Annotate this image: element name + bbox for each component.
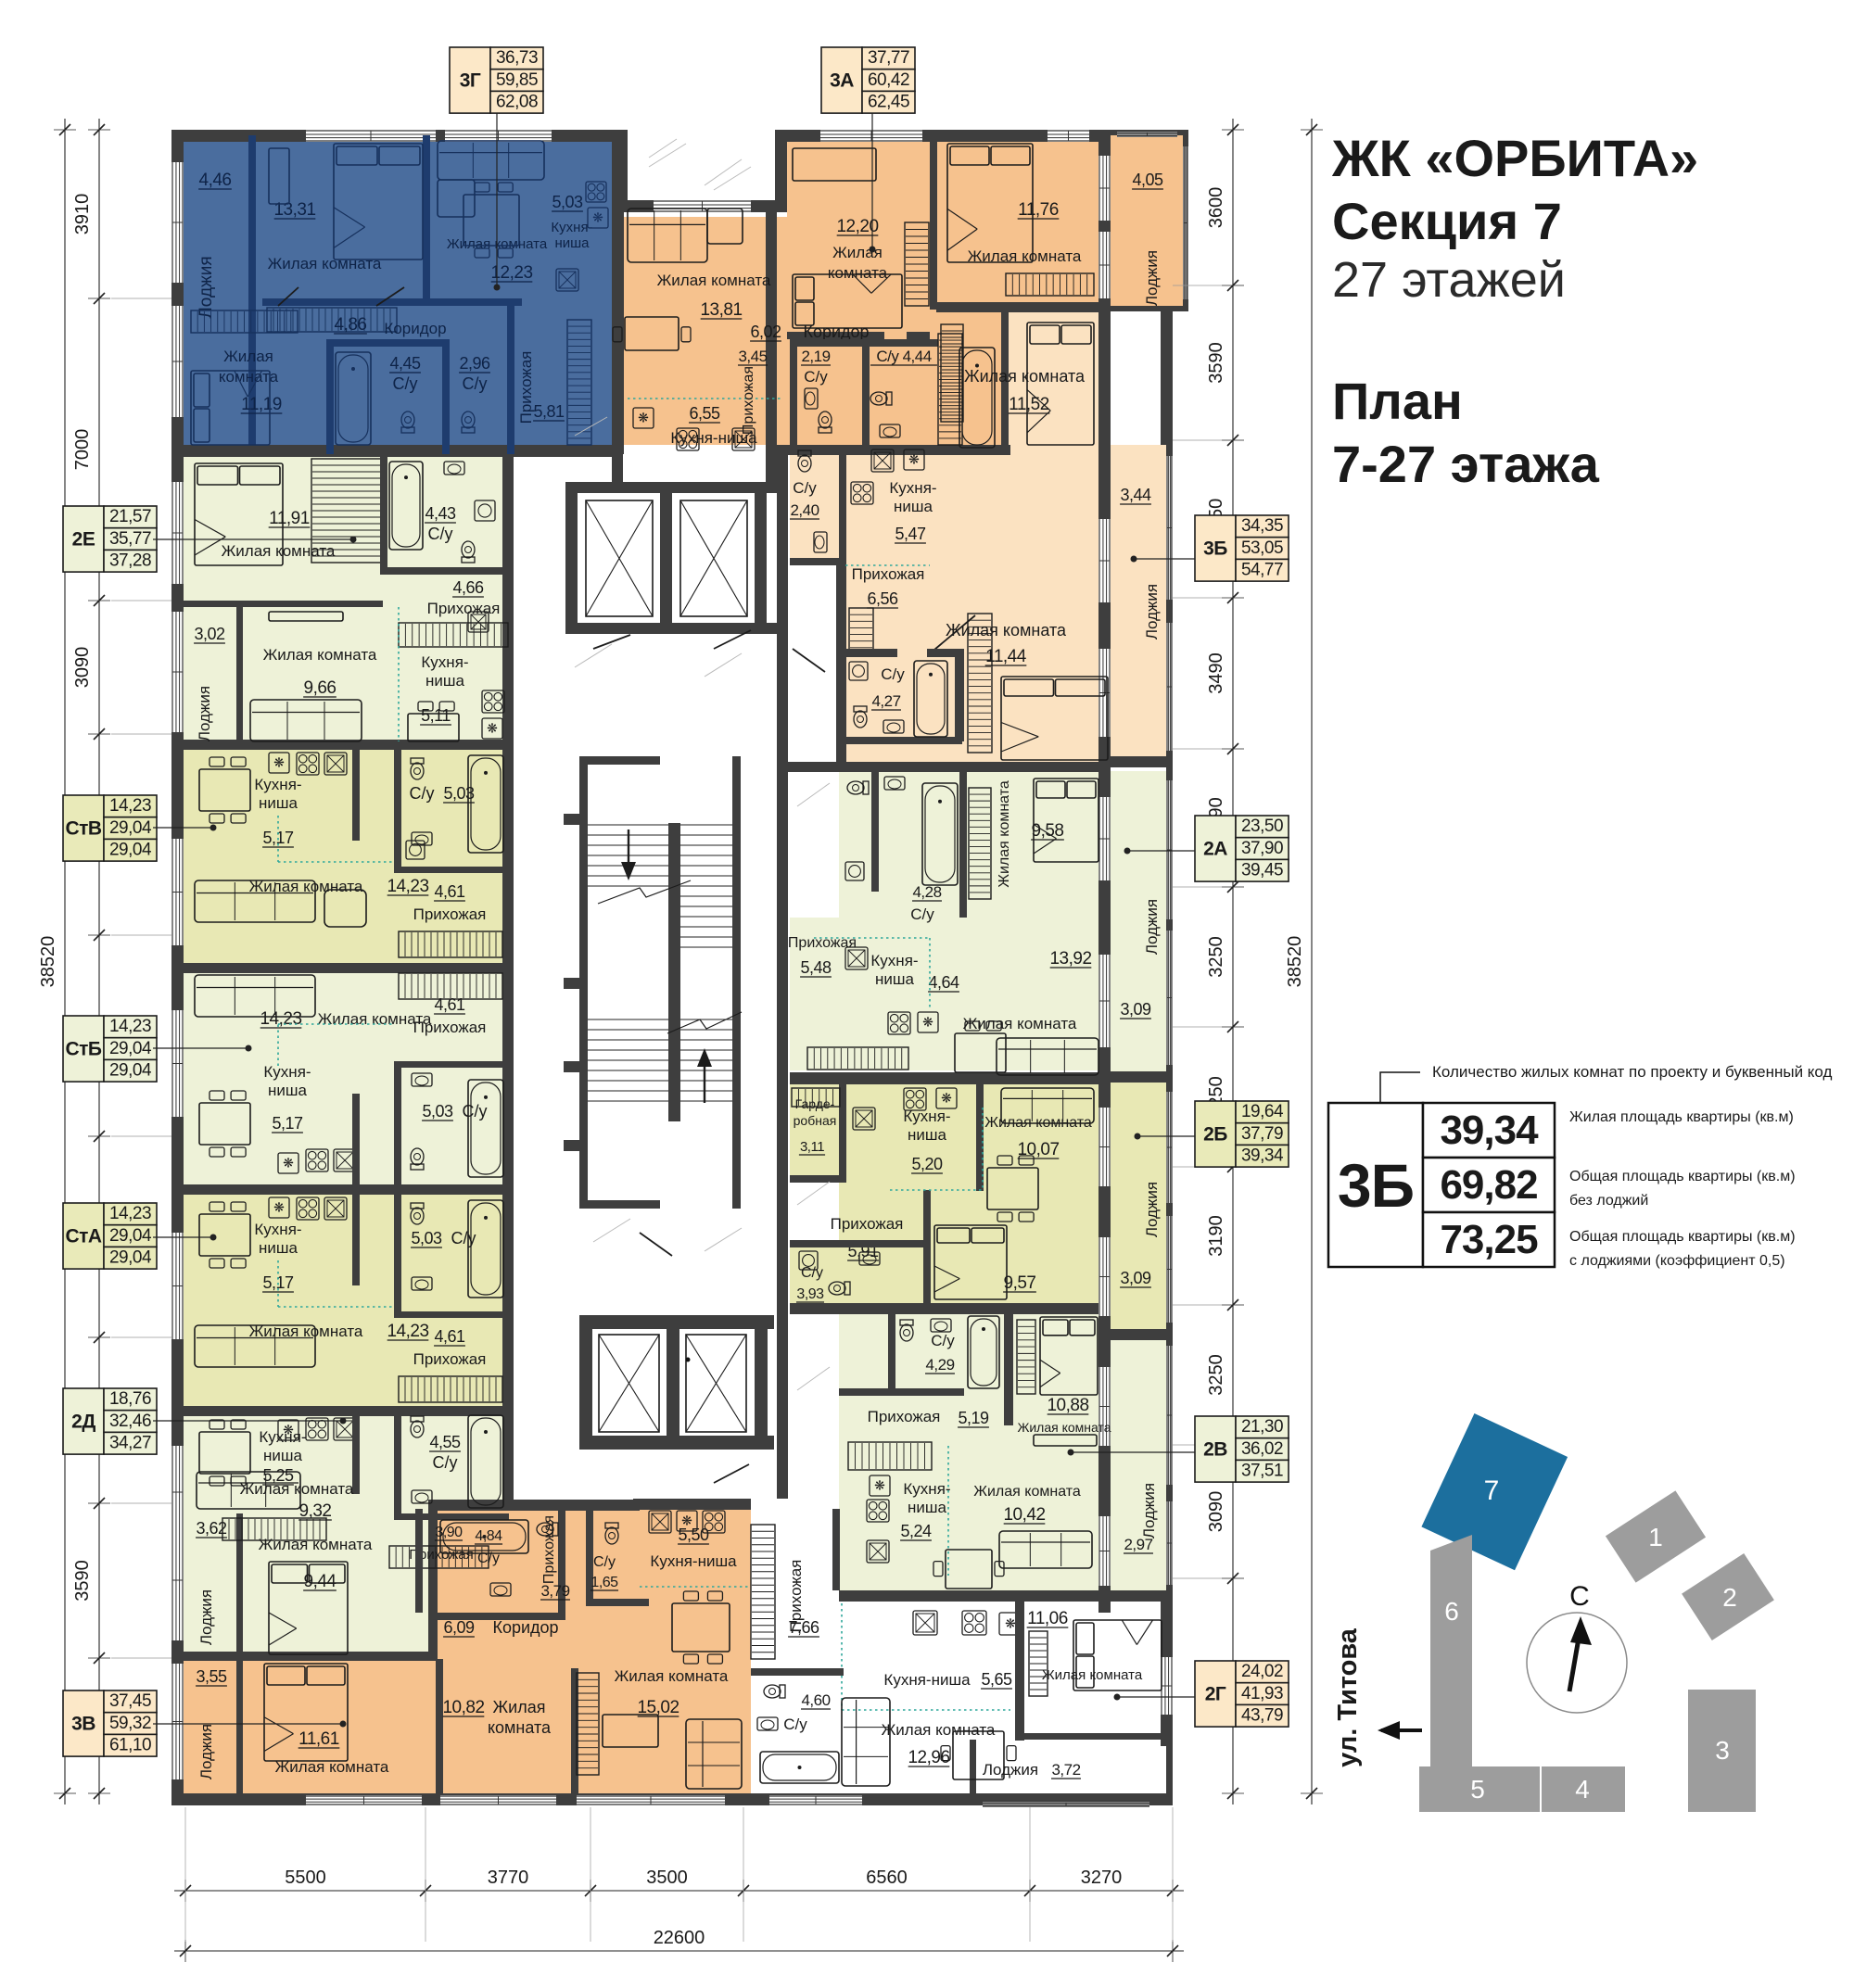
svg-text:13,81: 13,81 xyxy=(700,300,742,320)
svg-text:2В: 2В xyxy=(1203,1439,1227,1461)
svg-text:21,57: 21,57 xyxy=(109,507,151,526)
svg-text:С: С xyxy=(1569,1581,1590,1612)
svg-text:ниша: ниша xyxy=(908,1126,947,1144)
svg-text:Лоджия: Лоджия xyxy=(1143,1182,1161,1237)
svg-text:Лоджия: Лоджия xyxy=(196,686,213,741)
svg-text:29,04: 29,04 xyxy=(109,1226,152,1246)
svg-text:13,31: 13,31 xyxy=(273,200,315,220)
svg-text:ниша: ниша xyxy=(425,672,465,690)
svg-text:4,28: 4,28 xyxy=(912,883,941,901)
svg-text:5,20: 5,20 xyxy=(911,1155,943,1173)
svg-text:4: 4 xyxy=(1575,1775,1590,1804)
svg-text:4,61: 4,61 xyxy=(434,882,465,901)
svg-text:3910: 3910 xyxy=(72,194,93,235)
svg-text:Жилая комната: Жилая комната xyxy=(973,1484,1081,1500)
svg-text:ниша: ниша xyxy=(875,970,915,988)
svg-text:Количество жилых комнат по про: Количество жилых комнат по проекту и бук… xyxy=(1432,1063,1833,1081)
svg-text:ниша: ниша xyxy=(259,1239,298,1257)
svg-text:С/у: С/у xyxy=(393,374,418,393)
svg-text:❋: ❋ xyxy=(283,1156,294,1171)
svg-text:Жилая: Жилая xyxy=(223,348,273,365)
svg-text:37,90: 37,90 xyxy=(1241,839,1283,858)
svg-text:Жилая комната: Жилая комната xyxy=(259,1536,373,1553)
svg-text:11,06: 11,06 xyxy=(1027,1609,1068,1628)
svg-text:38520: 38520 xyxy=(1285,936,1305,988)
svg-text:3190: 3190 xyxy=(1206,1215,1226,1257)
svg-text:2Г: 2Г xyxy=(1205,1684,1226,1705)
svg-text:7-27 этажа: 7-27 этажа xyxy=(1332,435,1600,493)
svg-text:14,23: 14,23 xyxy=(109,1017,151,1036)
svg-text:11,91: 11,91 xyxy=(269,509,310,528)
svg-text:Прихожая: Прихожая xyxy=(413,905,487,923)
svg-text:❋: ❋ xyxy=(638,411,649,425)
svg-text:С/у: С/у xyxy=(804,368,828,386)
svg-text:43,79: 43,79 xyxy=(1241,1706,1283,1726)
svg-text:С/у: С/у xyxy=(783,1716,807,1733)
svg-text:С/у: С/у xyxy=(463,374,488,393)
svg-text:Жилая комната: Жилая комната xyxy=(615,1667,729,1685)
svg-text:27 этажей: 27 этажей xyxy=(1332,252,1566,308)
svg-text:36,73: 36,73 xyxy=(496,48,538,68)
svg-text:1: 1 xyxy=(1648,1523,1663,1551)
svg-text:ул. Титова: ул. Титова xyxy=(1333,1627,1363,1767)
svg-text:ниша: ниша xyxy=(908,1499,947,1516)
svg-text:Кухня-: Кухня- xyxy=(254,776,301,793)
svg-text:37,51: 37,51 xyxy=(1241,1462,1283,1481)
svg-text:С/у: С/у xyxy=(801,1265,823,1281)
svg-text:3,93: 3,93 xyxy=(796,1286,824,1302)
svg-text:5,03: 5,03 xyxy=(552,193,583,211)
svg-text:7,66: 7,66 xyxy=(788,1618,819,1637)
svg-text:СтА: СтА xyxy=(65,1226,101,1247)
svg-text:23,50: 23,50 xyxy=(1241,817,1283,836)
svg-text:С/у: С/у xyxy=(881,665,905,683)
svg-text:Жилая комната: Жилая комната xyxy=(946,621,1067,639)
svg-text:Кухня-: Кухня- xyxy=(903,1480,950,1498)
svg-text:4,60: 4,60 xyxy=(801,1691,830,1709)
svg-text:3,45: 3,45 xyxy=(738,348,767,365)
svg-text:6,09: 6,09 xyxy=(443,1618,475,1637)
svg-text:14,23: 14,23 xyxy=(109,796,151,816)
svg-text:ниша: ниша xyxy=(554,235,590,251)
svg-text:5,03: 5,03 xyxy=(443,784,475,803)
svg-text:2,40: 2,40 xyxy=(790,501,819,519)
svg-text:3Б: 3Б xyxy=(1203,538,1227,560)
svg-text:Жилая комната: Жилая комната xyxy=(268,255,382,272)
svg-text:4,61: 4,61 xyxy=(434,1327,465,1346)
svg-text:3А: 3А xyxy=(830,70,854,92)
svg-text:3250: 3250 xyxy=(1206,1354,1226,1396)
svg-text:Жилая комната: Жилая комната xyxy=(263,646,377,664)
svg-text:С/у: С/у xyxy=(433,1453,458,1472)
svg-text:37,77: 37,77 xyxy=(868,48,909,68)
svg-text:Жилая комната: Жилая комната xyxy=(657,272,771,289)
svg-text:4,55: 4,55 xyxy=(429,1433,461,1451)
svg-text:С/у: С/у xyxy=(593,1554,616,1570)
svg-text:❋: ❋ xyxy=(592,210,603,225)
svg-text:Прихожая: Прихожая xyxy=(741,366,756,435)
svg-text:Лоджия: Лоджия xyxy=(1143,899,1161,955)
svg-text:5500: 5500 xyxy=(285,1868,326,1888)
svg-text:Кухня-: Кухня- xyxy=(263,1063,311,1081)
svg-text:5,11: 5,11 xyxy=(421,706,451,725)
svg-text:1,65: 1,65 xyxy=(590,1575,618,1590)
svg-text:Прихожая: Прихожая xyxy=(541,1515,557,1584)
svg-text:19,64: 19,64 xyxy=(1241,1102,1284,1121)
svg-text:14,23: 14,23 xyxy=(387,1322,428,1341)
svg-text:38520: 38520 xyxy=(38,936,58,988)
svg-text:4,46: 4,46 xyxy=(199,171,232,190)
svg-text:61,10: 61,10 xyxy=(109,1736,151,1755)
svg-text:❋: ❋ xyxy=(273,755,285,770)
svg-text:4,66: 4,66 xyxy=(452,578,484,597)
svg-text:Лоджия: Лоджия xyxy=(983,1761,1038,1779)
svg-text:Прихожая: Прихожая xyxy=(831,1215,904,1233)
svg-text:Жилая комната: Жилая комната xyxy=(882,1721,996,1739)
svg-text:Жилая: Жилая xyxy=(832,244,883,261)
svg-text:2Б: 2Б xyxy=(1203,1124,1227,1146)
svg-text:29,04: 29,04 xyxy=(109,1061,152,1081)
svg-text:3250: 3250 xyxy=(1206,936,1226,978)
svg-text:18,76: 18,76 xyxy=(109,1389,151,1409)
svg-text:Прихожая: Прихожая xyxy=(868,1408,941,1425)
svg-text:9,58: 9,58 xyxy=(1032,821,1064,841)
svg-text:С/у: С/у xyxy=(931,1332,955,1349)
svg-text:11,61: 11,61 xyxy=(298,1729,339,1749)
svg-text:37,28: 37,28 xyxy=(109,551,151,571)
svg-text:Кухня-: Кухня- xyxy=(551,220,592,235)
svg-text:3590: 3590 xyxy=(72,1560,93,1602)
svg-text:С/у 4,44: С/у 4,44 xyxy=(876,348,931,365)
svg-text:12,96: 12,96 xyxy=(908,1748,949,1767)
svg-text:4,84: 4,84 xyxy=(475,1528,502,1544)
svg-text:3,09: 3,09 xyxy=(1120,1269,1151,1287)
svg-text:62,08: 62,08 xyxy=(496,93,538,112)
svg-text:Кухня-ниша: Кухня-ниша xyxy=(650,1552,737,1570)
svg-text:5,03: 5,03 xyxy=(422,1102,453,1121)
svg-text:робная: робная xyxy=(794,1113,837,1128)
svg-text:9,66: 9,66 xyxy=(304,678,337,698)
svg-text:9,57: 9,57 xyxy=(1004,1273,1036,1293)
svg-text:Прихожая: Прихожая xyxy=(788,935,857,951)
svg-text:2Е: 2Е xyxy=(72,529,95,551)
svg-text:59,32: 59,32 xyxy=(109,1714,151,1733)
svg-text:Жилая комната: Жилая комната xyxy=(1042,1667,1143,1683)
svg-text:3,79: 3,79 xyxy=(540,1582,569,1600)
svg-text:24,02: 24,02 xyxy=(1241,1662,1283,1681)
svg-text:6: 6 xyxy=(1444,1597,1459,1626)
svg-text:4,27: 4,27 xyxy=(871,692,900,710)
svg-text:3В: 3В xyxy=(71,1714,95,1735)
svg-text:План: План xyxy=(1332,372,1463,430)
svg-text:Кухня-ниша: Кухня-ниша xyxy=(883,1671,971,1689)
svg-text:3: 3 xyxy=(1715,1736,1730,1765)
svg-text:34,35: 34,35 xyxy=(1241,516,1283,536)
svg-text:Кухня-: Кухня- xyxy=(254,1221,301,1238)
svg-text:СтБ: СтБ xyxy=(65,1039,101,1060)
svg-text:6560: 6560 xyxy=(866,1868,908,1888)
svg-text:комната: комната xyxy=(488,1718,552,1737)
svg-text:6,56: 6,56 xyxy=(867,589,898,608)
svg-text:С/у: С/у xyxy=(451,1229,476,1247)
svg-text:Лоджия: Лоджия xyxy=(197,1589,215,1645)
svg-text:3Б: 3Б xyxy=(1338,1151,1414,1220)
svg-text:Прихожая: Прихожая xyxy=(852,565,925,583)
svg-text:10,82: 10,82 xyxy=(442,1698,484,1717)
svg-text:С/у: С/у xyxy=(463,1102,488,1121)
svg-text:7000: 7000 xyxy=(72,429,93,471)
svg-text:Коридор: Коридор xyxy=(384,320,446,337)
svg-text:6,55: 6,55 xyxy=(689,404,720,423)
svg-text:❋: ❋ xyxy=(908,452,920,467)
svg-text:54,77: 54,77 xyxy=(1241,561,1283,580)
svg-text:29,04: 29,04 xyxy=(109,841,152,860)
svg-text:3490: 3490 xyxy=(1206,652,1226,694)
svg-text:29,04: 29,04 xyxy=(109,818,152,838)
svg-text:4,29: 4,29 xyxy=(925,1356,954,1374)
svg-text:3,55: 3,55 xyxy=(196,1667,227,1686)
svg-text:Жилая комната: Жилая комната xyxy=(964,367,1086,386)
svg-text:5,50: 5,50 xyxy=(678,1526,709,1544)
svg-text:❋: ❋ xyxy=(874,1478,885,1493)
svg-text:3,44: 3,44 xyxy=(1120,486,1151,504)
svg-text:без лоджий: без лоджий xyxy=(1569,1193,1648,1209)
svg-text:41,93: 41,93 xyxy=(1241,1684,1283,1703)
svg-text:❋: ❋ xyxy=(941,1091,952,1106)
svg-text:Общая площадь квартиры (кв.м): Общая площадь квартиры (кв.м) xyxy=(1569,1169,1796,1184)
svg-text:10,88: 10,88 xyxy=(1047,1396,1088,1415)
svg-text:Жилая комната: Жилая комната xyxy=(222,542,336,560)
svg-text:3770: 3770 xyxy=(488,1868,529,1888)
svg-text:ниша: ниша xyxy=(263,1447,303,1464)
svg-text:62,45: 62,45 xyxy=(868,93,909,112)
svg-text:4,43: 4,43 xyxy=(425,504,456,523)
svg-text:39,34: 39,34 xyxy=(1440,1108,1539,1153)
svg-text:❋: ❋ xyxy=(1005,1616,1016,1631)
svg-text:2Д: 2Д xyxy=(71,1412,95,1433)
svg-text:4,45: 4,45 xyxy=(389,354,421,373)
svg-text:❋: ❋ xyxy=(273,1200,285,1215)
svg-text:22600: 22600 xyxy=(654,1928,705,1948)
svg-text:34,27: 34,27 xyxy=(109,1434,151,1453)
svg-text:Общая площадь квартиры (кв.м): Общая площадь квартиры (кв.м) xyxy=(1569,1229,1796,1245)
svg-text:69,82: 69,82 xyxy=(1440,1162,1537,1208)
svg-text:Кухня-: Кухня- xyxy=(421,653,468,671)
svg-text:3,02: 3,02 xyxy=(194,625,225,643)
svg-text:3Г: 3Г xyxy=(460,70,481,92)
svg-text:60,42: 60,42 xyxy=(868,70,909,90)
svg-text:14,23: 14,23 xyxy=(109,1204,151,1223)
svg-text:ниша: ниша xyxy=(894,498,933,515)
svg-text:С/у: С/у xyxy=(910,905,934,923)
svg-text:59,85: 59,85 xyxy=(496,70,538,90)
svg-text:Коридор: Коридор xyxy=(803,323,869,341)
svg-text:Коридор: Коридор xyxy=(492,1618,558,1637)
svg-text:10,42: 10,42 xyxy=(1003,1505,1045,1525)
svg-text:2,97: 2,97 xyxy=(1124,1536,1152,1553)
svg-text:Жилая комната: Жилая комната xyxy=(1017,1420,1111,1435)
svg-text:5,81: 5,81 xyxy=(533,402,565,421)
svg-text:Прихожая: Прихожая xyxy=(517,351,535,424)
svg-text:32,46: 32,46 xyxy=(109,1412,151,1431)
svg-text:7: 7 xyxy=(1484,1475,1500,1506)
svg-text:5,03: 5,03 xyxy=(411,1229,442,1247)
svg-text:3,72: 3,72 xyxy=(1051,1761,1080,1779)
svg-text:5,17: 5,17 xyxy=(272,1114,303,1133)
svg-text:5,47: 5,47 xyxy=(895,525,926,543)
svg-text:5,19: 5,19 xyxy=(958,1409,989,1427)
svg-text:Прихожая: Прихожая xyxy=(413,1019,487,1036)
svg-text:3090: 3090 xyxy=(72,647,93,689)
svg-text:6,02: 6,02 xyxy=(750,323,781,341)
svg-text:ниша: ниша xyxy=(268,1082,308,1099)
svg-text:5: 5 xyxy=(1470,1775,1485,1804)
svg-text:❋: ❋ xyxy=(681,1513,692,1528)
svg-text:2: 2 xyxy=(1722,1583,1737,1612)
svg-text:4,61: 4,61 xyxy=(434,995,465,1014)
svg-text:2А: 2А xyxy=(1203,839,1227,860)
svg-text:4,86: 4,86 xyxy=(335,315,367,335)
svg-text:С/у: С/у xyxy=(428,525,453,543)
svg-text:3090: 3090 xyxy=(1206,1491,1226,1533)
svg-text:3500: 3500 xyxy=(646,1868,688,1888)
svg-text:Лоджия: Лоджия xyxy=(197,1724,215,1779)
svg-text:Лоджия: Лоджия xyxy=(1143,584,1161,639)
svg-text:53,05: 53,05 xyxy=(1241,538,1283,558)
svg-text:10,07: 10,07 xyxy=(1017,1140,1059,1159)
svg-text:❋: ❋ xyxy=(283,1423,294,1437)
svg-text:ЖК «ОРБИТА»: ЖК «ОРБИТА» xyxy=(1331,129,1698,187)
svg-text:с лоджиями (коэффициент 0,5): с лоджиями (коэффициент 0,5) xyxy=(1569,1253,1785,1269)
svg-text:5,24: 5,24 xyxy=(900,1522,932,1540)
svg-text:3,09: 3,09 xyxy=(1120,1000,1151,1019)
svg-text:3,90: 3,90 xyxy=(435,1525,463,1540)
svg-text:❋: ❋ xyxy=(922,1015,933,1030)
svg-text:Секция 7: Секция 7 xyxy=(1332,192,1562,250)
svg-text:2,96: 2,96 xyxy=(459,354,490,373)
svg-text:13,92: 13,92 xyxy=(1049,949,1091,969)
svg-text:35,77: 35,77 xyxy=(109,529,151,549)
svg-text:11,76: 11,76 xyxy=(1018,200,1059,220)
svg-text:❋: ❋ xyxy=(487,721,498,736)
svg-text:Лоджия: Лоджия xyxy=(1140,1483,1158,1538)
svg-text:С/у: С/у xyxy=(793,479,817,497)
svg-text:37,79: 37,79 xyxy=(1241,1124,1283,1144)
svg-text:36,02: 36,02 xyxy=(1241,1439,1283,1459)
svg-text:Жилая комната: Жилая комната xyxy=(997,780,1012,888)
svg-text:4,05: 4,05 xyxy=(1132,171,1163,189)
svg-text:Лоджия: Лоджия xyxy=(197,256,216,318)
svg-text:73,25: 73,25 xyxy=(1440,1217,1538,1262)
svg-text:5,48: 5,48 xyxy=(800,958,832,977)
svg-text:29,04: 29,04 xyxy=(109,1039,152,1058)
svg-text:Гарде-: Гарде- xyxy=(795,1096,835,1111)
svg-text:Прихожая: Прихожая xyxy=(413,1350,487,1368)
svg-text:Жилая площадь квартиры (кв.м): Жилая площадь квартиры (кв.м) xyxy=(1569,1109,1794,1125)
svg-text:Жилая: Жилая xyxy=(493,1698,546,1716)
svg-text:29,04: 29,04 xyxy=(109,1248,152,1268)
svg-text:4,64: 4,64 xyxy=(928,973,959,992)
svg-text:5,65: 5,65 xyxy=(981,1670,1012,1689)
svg-text:3590: 3590 xyxy=(1206,342,1226,384)
svg-text:14,23: 14,23 xyxy=(260,1009,301,1029)
svg-text:Кухня-: Кухня- xyxy=(889,479,936,497)
svg-text:11,19: 11,19 xyxy=(241,395,282,414)
svg-text:39,34: 39,34 xyxy=(1241,1146,1284,1166)
svg-text:39,45: 39,45 xyxy=(1241,861,1283,880)
svg-text:С/у: С/у xyxy=(410,784,435,803)
svg-text:Лоджия: Лоджия xyxy=(1143,250,1161,306)
svg-text:СтВ: СтВ xyxy=(65,818,101,840)
svg-text:2,19: 2,19 xyxy=(801,348,830,365)
svg-text:Кухня-: Кухня- xyxy=(870,952,918,969)
svg-text:21,30: 21,30 xyxy=(1241,1417,1283,1437)
svg-text:3270: 3270 xyxy=(1081,1868,1123,1888)
svg-text:37,45: 37,45 xyxy=(109,1691,151,1711)
svg-text:14,23: 14,23 xyxy=(387,877,428,896)
svg-text:ниша: ниша xyxy=(259,794,298,812)
svg-text:3,11: 3,11 xyxy=(800,1139,824,1155)
svg-text:3600: 3600 xyxy=(1206,187,1226,229)
